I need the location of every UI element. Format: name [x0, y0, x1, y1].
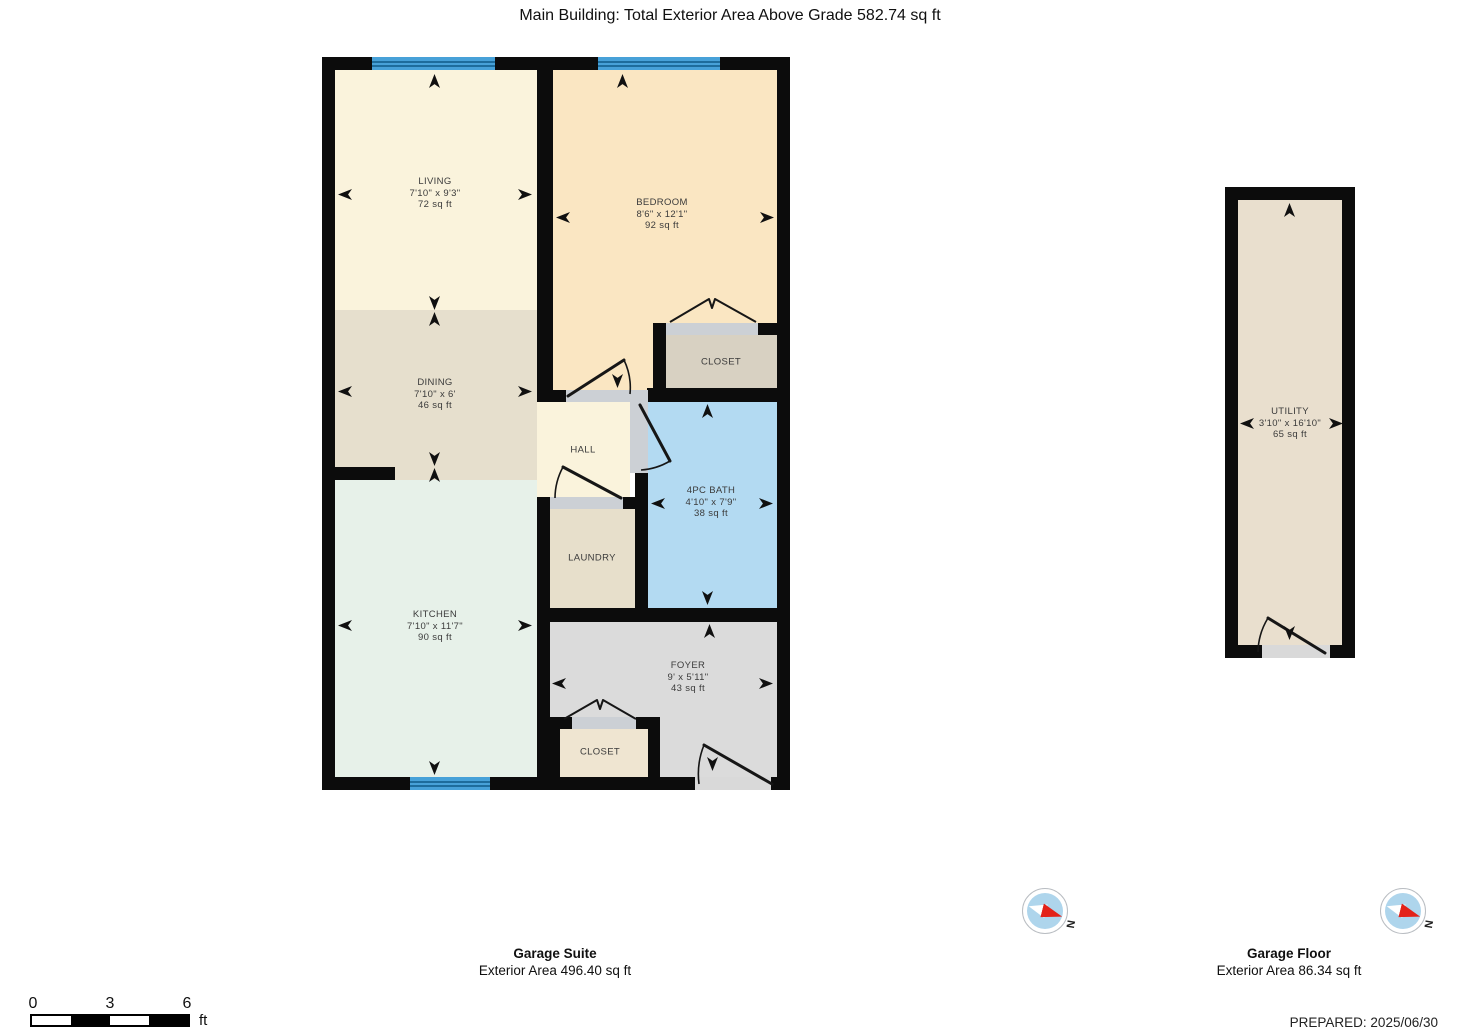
room-label-laundry: LAUNDRY: [568, 552, 616, 564]
compass-north-label: N: [1421, 919, 1434, 929]
room-dims: 9' x 5'11": [668, 671, 709, 683]
scale-segment: [110, 1016, 149, 1025]
scale-tick-6: 6: [183, 995, 192, 1013]
room-dims: 7'10" x 6': [414, 388, 456, 400]
room-dims: 3'10" x 16'10": [1259, 417, 1321, 429]
scale-segment: [71, 1016, 110, 1025]
room-name: BEDROOM: [636, 197, 688, 209]
wall-garage-right: [1342, 187, 1355, 658]
threshold-laundry-door: [550, 497, 623, 509]
room-area: 72 sq ft: [409, 199, 460, 211]
compass-icon: N: [1380, 888, 1426, 934]
room-name: 4PC BATH: [685, 485, 736, 497]
wall-hall-top-stub: [537, 390, 566, 402]
room-dims: 8'6" x 12'1": [636, 208, 688, 220]
room-name: UTILITY: [1259, 406, 1321, 418]
window-bedroom: [598, 57, 720, 70]
room-label-dining: DINING 7'10" x 6' 46 sq ft: [414, 377, 456, 412]
floorplan-page: Main Building: Total Exterior Area Above…: [0, 0, 1460, 1036]
room-area: 38 sq ft: [685, 508, 736, 520]
scale-unit-label: ft: [199, 1012, 207, 1029]
room-label-living: LIVING 7'10" x 9'3" 72 sq ft: [409, 176, 460, 211]
wall-foyercloset-left: [548, 717, 560, 777]
floor-bedroom-lower: [553, 323, 653, 390]
room-name: KITCHEN: [407, 609, 463, 621]
room-dims: 7'10" x 9'3": [409, 187, 460, 199]
wall-foyer-top: [537, 608, 777, 622]
room-label-kitchen: KITCHEN 7'10" x 11'7" 90 sq ft: [407, 609, 463, 644]
wall-exterior-left: [322, 57, 335, 790]
wall-exterior-right: [777, 57, 790, 790]
room-name: CLOSET: [701, 356, 741, 368]
scale-bar: [30, 1014, 190, 1027]
wall-foyercloset-right: [648, 717, 660, 777]
wall-closet-bath: [647, 388, 777, 402]
room-label-closet-bedroom: CLOSET: [701, 356, 741, 368]
room-name: LIVING: [409, 176, 460, 188]
wall-garage-left: [1225, 187, 1238, 658]
wall-foyercloset-stub-r: [636, 717, 648, 729]
caption-area: Exterior Area 86.34 sq ft: [1217, 962, 1362, 979]
room-label-hall: HALL: [570, 444, 595, 456]
room-label-bath: 4PC BATH 4'10" x 7'9" 38 sq ft: [685, 485, 736, 520]
room-label-bedroom: BEDROOM 8'6" x 12'1" 92 sq ft: [636, 197, 688, 232]
page-title: Main Building: Total Exterior Area Above…: [0, 7, 1460, 25]
scale-tick-0: 0: [29, 995, 38, 1013]
wall-living-bedroom: [537, 70, 553, 402]
wall-bath-left: [635, 473, 648, 622]
wall-foyercloset-stub-l: [560, 717, 572, 729]
room-area: 90 sq ft: [407, 632, 463, 644]
compass-north-label: N: [1063, 919, 1076, 929]
threshold-bedroom-door: [566, 390, 630, 402]
room-area: 65 sq ft: [1259, 429, 1321, 441]
room-name: HALL: [570, 444, 595, 456]
wall-closet-right-stub: [758, 323, 777, 335]
caption-garage-floor: Garage Floor Exterior Area 86.34 sq ft: [1217, 945, 1362, 979]
wall-garage-top: [1225, 187, 1355, 200]
caption-area: Exterior Area 496.40 sq ft: [479, 962, 631, 979]
prepared-date: PREPARED: 2025/06/30: [1290, 1015, 1438, 1030]
threshold-garage-door: [1262, 645, 1330, 658]
threshold-entry-door: [695, 777, 771, 790]
room-label-closet-foyer: CLOSET: [580, 746, 620, 758]
window-living: [372, 57, 495, 70]
room-area: 43 sq ft: [668, 683, 709, 695]
caption-title: Garage Floor: [1217, 945, 1362, 962]
room-area: 92 sq ft: [636, 220, 688, 232]
threshold-closet-bedroom: [666, 323, 758, 335]
room-dims: 7'10" x 11'7": [407, 620, 463, 632]
room-dims: 4'10" x 7'9": [685, 496, 736, 508]
wall-laundry-stub: [623, 497, 635, 509]
room-name: DINING: [414, 377, 456, 389]
room-name: LAUNDRY: [568, 552, 616, 564]
wall-closet-left: [653, 323, 666, 388]
threshold-closet-foyer: [572, 717, 636, 729]
window-kitchen: [410, 777, 490, 790]
scale-segment: [32, 1016, 71, 1025]
scale-segment: [149, 1016, 188, 1025]
room-name: CLOSET: [580, 746, 620, 758]
room-label-utility: UTILITY 3'10" x 16'10" 65 sq ft: [1259, 406, 1321, 441]
caption-title: Garage Suite: [479, 945, 631, 962]
compass-icon: N: [1022, 888, 1068, 934]
wall-dining-kitchen-stub: [322, 467, 395, 480]
threshold-bath-door: [630, 390, 648, 473]
caption-garage-suite: Garage Suite Exterior Area 496.40 sq ft: [479, 945, 631, 979]
scale-tick-3: 3: [106, 995, 115, 1013]
room-name: FOYER: [668, 660, 709, 672]
room-label-foyer: FOYER 9' x 5'11" 43 sq ft: [668, 660, 709, 695]
room-area: 46 sq ft: [414, 400, 456, 412]
